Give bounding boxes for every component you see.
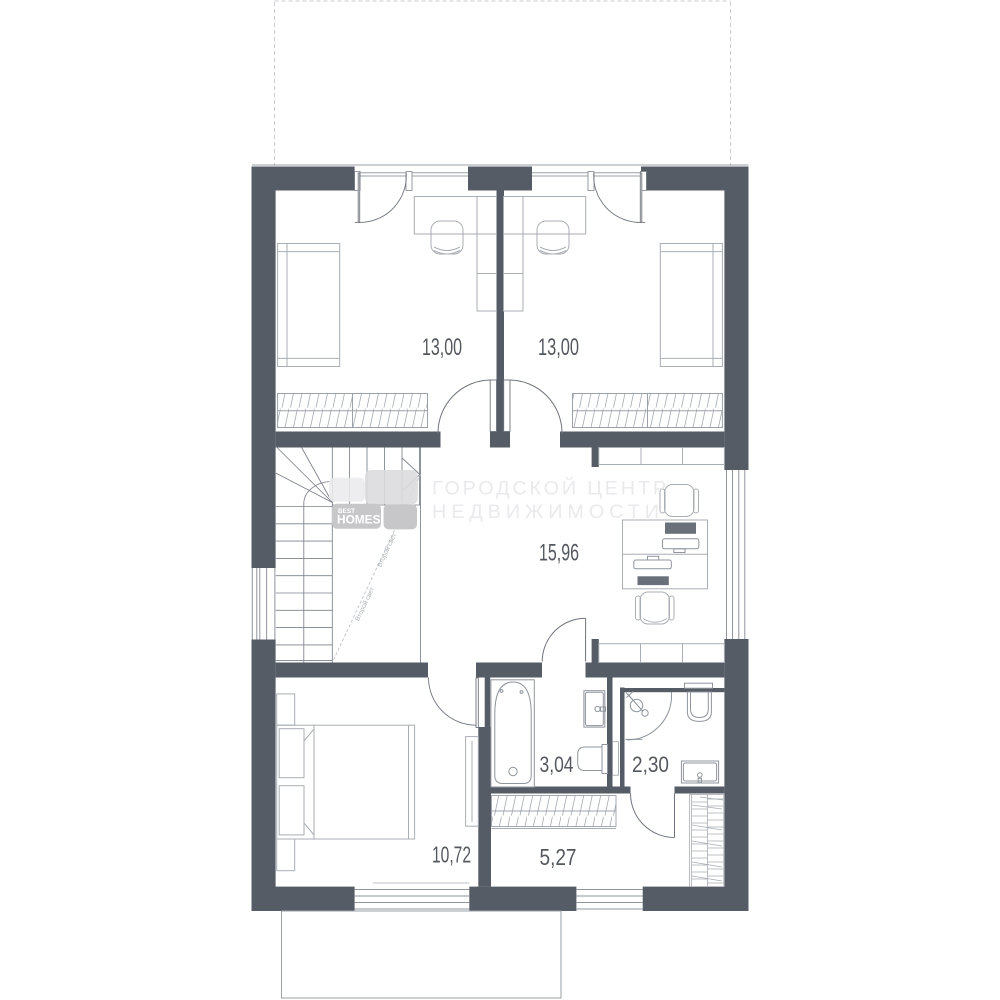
svg-text:ГОРОДСКОЙ ЦЕНТР: ГОРОДСКОЙ ЦЕНТР <box>432 475 669 499</box>
svg-text:HOMES: HOMES <box>337 512 381 526</box>
svg-text:НЕДВИЖИМОСТИ: НЕДВИЖИМОСТИ <box>432 501 664 523</box>
svg-text:13,00: 13,00 <box>538 334 579 361</box>
svg-text:3,04: 3,04 <box>540 752 574 777</box>
svg-text:5,27: 5,27 <box>540 844 577 870</box>
svg-text:2,30: 2,30 <box>632 752 669 777</box>
svg-text:10,72: 10,72 <box>432 842 471 868</box>
svg-text:13,00: 13,00 <box>422 334 462 361</box>
svg-text:15,96: 15,96 <box>539 540 579 567</box>
